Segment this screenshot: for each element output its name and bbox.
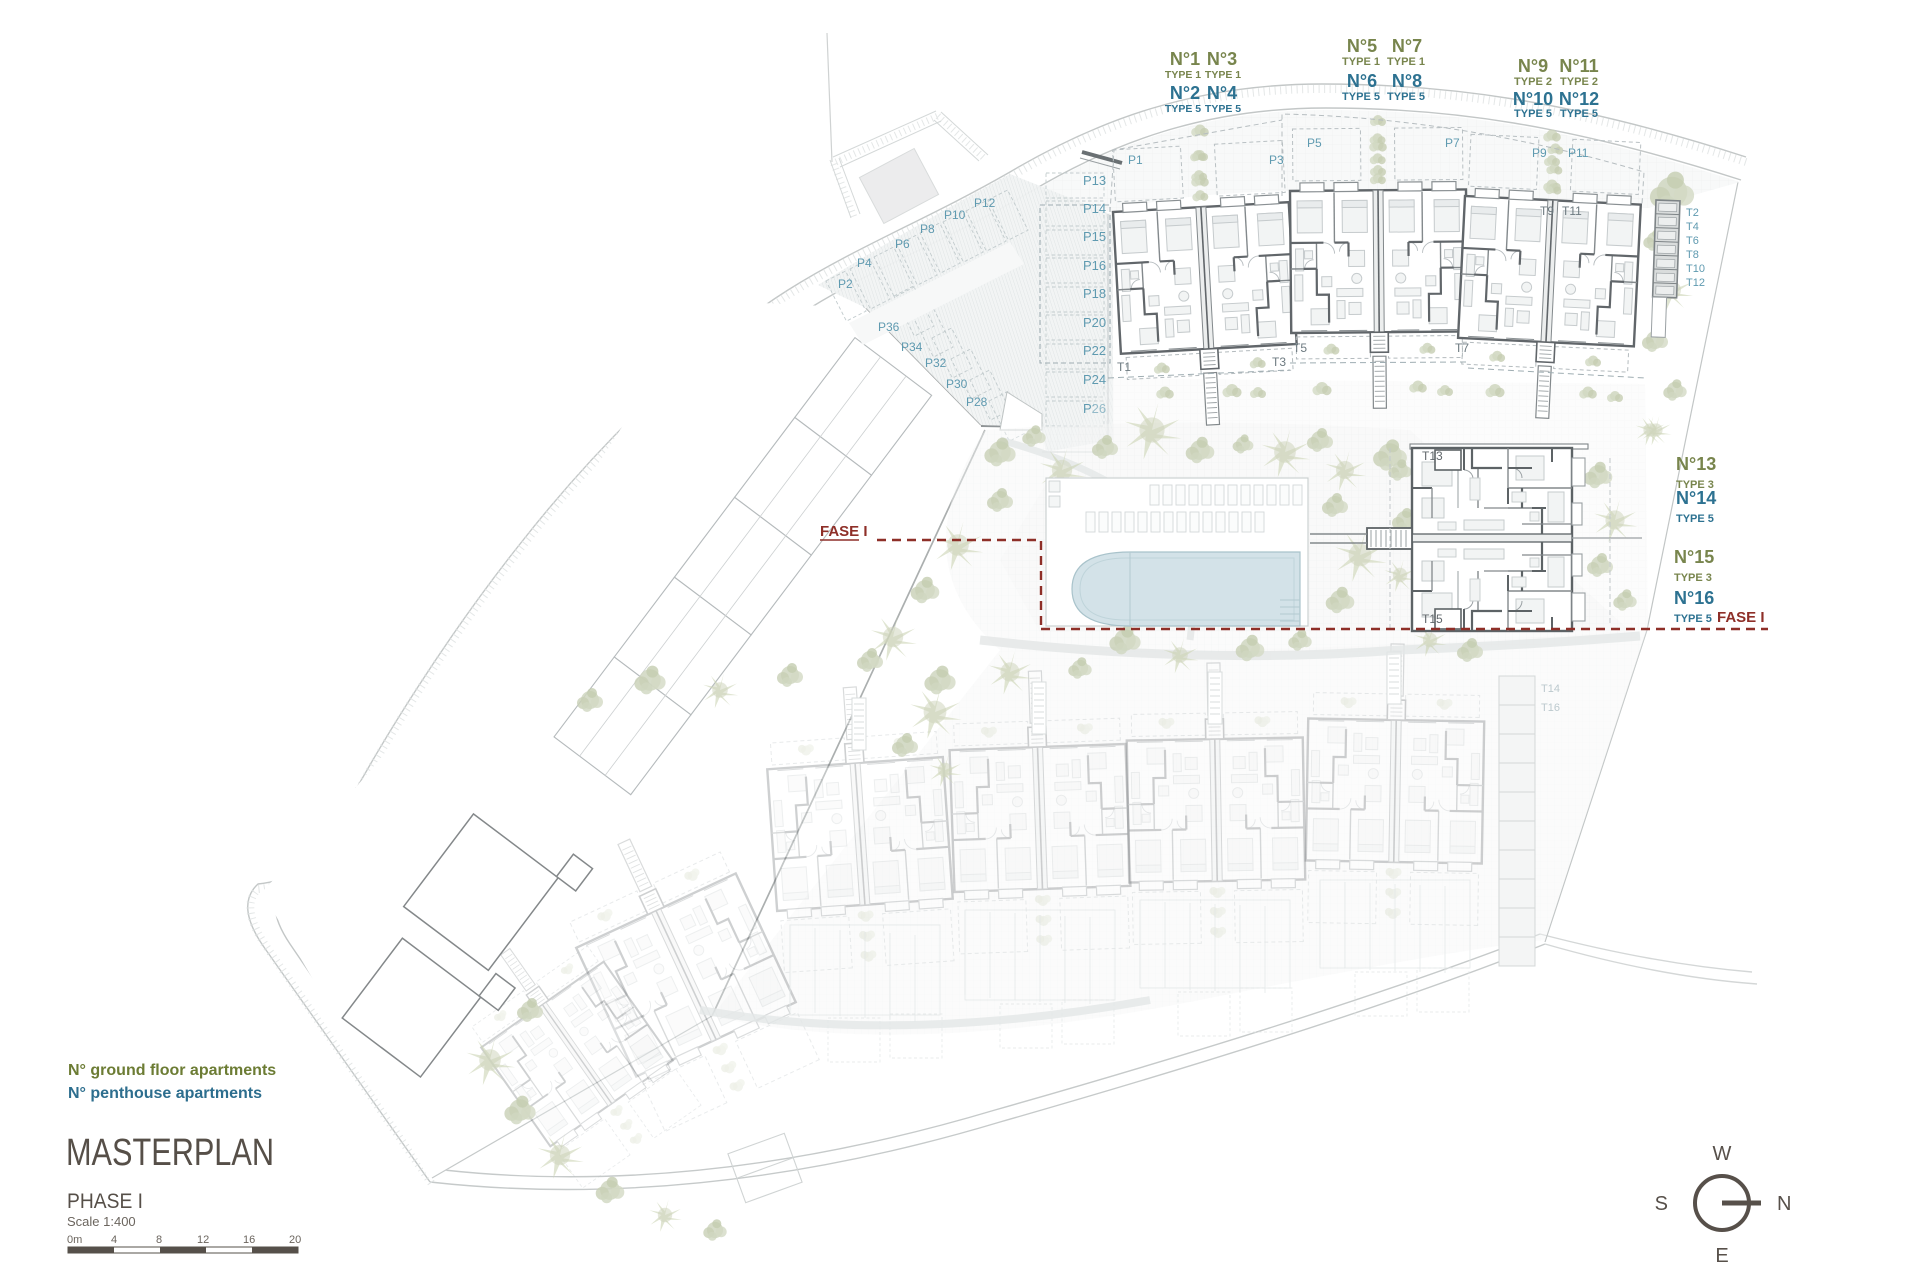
svg-text:16: 16 bbox=[243, 1234, 255, 1246]
svg-text:N°10: N°10 bbox=[1513, 89, 1553, 109]
svg-text:PHASE I: PHASE I bbox=[67, 1190, 143, 1213]
svg-text:T16: T16 bbox=[1541, 702, 1560, 714]
svg-text:T14: T14 bbox=[1541, 683, 1560, 695]
svg-text:N°6: N°6 bbox=[1347, 71, 1377, 91]
svg-text:P13: P13 bbox=[1083, 173, 1106, 188]
svg-text:P4: P4 bbox=[857, 256, 872, 270]
svg-text:P28: P28 bbox=[966, 395, 988, 409]
svg-text:12: 12 bbox=[197, 1234, 209, 1246]
svg-text:P22: P22 bbox=[1083, 343, 1106, 358]
svg-text:T9: T9 bbox=[1540, 204, 1554, 218]
svg-text:TYPE 5: TYPE 5 bbox=[1387, 91, 1425, 103]
svg-text:TYPE 5: TYPE 5 bbox=[1342, 91, 1380, 103]
svg-text:Scale 1:400: Scale 1:400 bbox=[67, 1214, 136, 1229]
svg-text:N°1: N°1 bbox=[1170, 49, 1200, 69]
svg-text:TYPE 5: TYPE 5 bbox=[1676, 513, 1714, 525]
svg-text:4: 4 bbox=[111, 1234, 117, 1246]
svg-text:N°2: N°2 bbox=[1170, 83, 1200, 103]
svg-text:N° penthouse apartments: N° penthouse apartments bbox=[68, 1085, 262, 1102]
svg-text:P3: P3 bbox=[1269, 153, 1284, 167]
svg-text:N°9: N°9 bbox=[1518, 56, 1548, 76]
svg-text:FASE I: FASE I bbox=[820, 523, 868, 540]
svg-text:N°16: N°16 bbox=[1674, 588, 1714, 608]
svg-text:P14: P14 bbox=[1083, 201, 1106, 216]
svg-text:N°7: N°7 bbox=[1392, 36, 1422, 56]
svg-text:P11: P11 bbox=[1568, 146, 1589, 160]
svg-text:P24: P24 bbox=[1083, 372, 1106, 387]
svg-text:N°5: N°5 bbox=[1347, 36, 1377, 56]
svg-text:W: W bbox=[1713, 1143, 1732, 1165]
svg-text:P8: P8 bbox=[920, 222, 935, 236]
svg-text:N°8: N°8 bbox=[1392, 71, 1422, 91]
svg-text:TYPE 5: TYPE 5 bbox=[1514, 108, 1552, 120]
svg-text:P16: P16 bbox=[1083, 258, 1106, 273]
svg-text:FASE I: FASE I bbox=[1717, 609, 1765, 626]
svg-text:P2: P2 bbox=[838, 277, 853, 291]
svg-text:N°15: N°15 bbox=[1674, 547, 1714, 567]
svg-text:N°3: N°3 bbox=[1207, 49, 1237, 69]
svg-text:TYPE 1: TYPE 1 bbox=[1342, 56, 1380, 68]
svg-text:20: 20 bbox=[289, 1234, 301, 1246]
svg-text:P1: P1 bbox=[1128, 153, 1143, 167]
svg-text:TYPE 2: TYPE 2 bbox=[1514, 76, 1552, 88]
svg-text:TYPE 5: TYPE 5 bbox=[1205, 103, 1241, 115]
svg-text:TYPE 3: TYPE 3 bbox=[1674, 572, 1712, 584]
svg-text:P34: P34 bbox=[901, 340, 923, 354]
svg-text:P7: P7 bbox=[1445, 136, 1460, 150]
svg-text:T4: T4 bbox=[1686, 221, 1699, 233]
svg-text:P36: P36 bbox=[878, 320, 900, 334]
svg-text:E: E bbox=[1715, 1245, 1728, 1267]
svg-text:T5: T5 bbox=[1293, 341, 1307, 355]
svg-text:T15: T15 bbox=[1422, 612, 1443, 626]
svg-text:TYPE 2: TYPE 2 bbox=[1560, 76, 1598, 88]
svg-text:T13: T13 bbox=[1422, 449, 1443, 463]
svg-text:TYPE 1: TYPE 1 bbox=[1205, 69, 1241, 81]
svg-text:T7: T7 bbox=[1455, 341, 1469, 355]
svg-text:P12: P12 bbox=[974, 196, 996, 210]
svg-text:T10: T10 bbox=[1686, 263, 1705, 275]
svg-text:T3: T3 bbox=[1272, 355, 1286, 369]
svg-text:TYPE 5: TYPE 5 bbox=[1165, 103, 1201, 115]
svg-text:P18: P18 bbox=[1083, 286, 1106, 301]
svg-text:TYPE 5: TYPE 5 bbox=[1560, 108, 1598, 120]
svg-text:N: N bbox=[1777, 1193, 1791, 1215]
svg-text:S: S bbox=[1655, 1193, 1668, 1215]
svg-text:T8: T8 bbox=[1686, 249, 1699, 261]
svg-text:TYPE 1: TYPE 1 bbox=[1387, 56, 1425, 68]
svg-text:T1: T1 bbox=[1117, 360, 1131, 374]
svg-text:TYPE 1: TYPE 1 bbox=[1165, 69, 1201, 81]
svg-text:P32: P32 bbox=[925, 356, 947, 370]
svg-text:P20: P20 bbox=[1083, 315, 1106, 330]
svg-text:N° ground floor apartments: N° ground floor apartments bbox=[68, 1062, 276, 1079]
svg-text:T11: T11 bbox=[1562, 204, 1582, 218]
svg-text:N°12: N°12 bbox=[1559, 89, 1599, 109]
svg-text:N°11: N°11 bbox=[1559, 56, 1598, 76]
svg-text:TYPE 5: TYPE 5 bbox=[1674, 613, 1712, 625]
svg-text:P9: P9 bbox=[1532, 146, 1547, 160]
svg-text:N°14: N°14 bbox=[1676, 488, 1716, 508]
svg-text:N°13: N°13 bbox=[1676, 454, 1716, 474]
svg-text:T12: T12 bbox=[1686, 277, 1705, 289]
svg-text:P10: P10 bbox=[944, 208, 966, 222]
svg-text:0m: 0m bbox=[67, 1234, 82, 1246]
svg-text:8: 8 bbox=[156, 1234, 162, 1246]
svg-text:MASTERPLAN: MASTERPLAN bbox=[66, 1132, 274, 1174]
svg-text:T6: T6 bbox=[1686, 235, 1699, 247]
svg-text:N°4: N°4 bbox=[1207, 83, 1237, 103]
svg-text:T2: T2 bbox=[1686, 207, 1699, 219]
svg-text:P5: P5 bbox=[1307, 136, 1322, 150]
svg-text:P15: P15 bbox=[1083, 229, 1106, 244]
svg-text:P30: P30 bbox=[946, 377, 968, 391]
svg-text:P6: P6 bbox=[895, 237, 910, 251]
